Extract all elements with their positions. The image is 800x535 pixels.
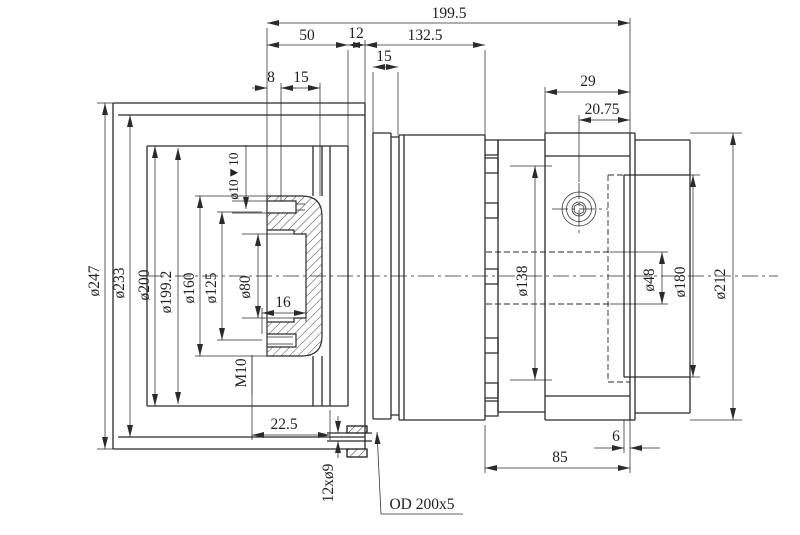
dim-12: 12 [348, 25, 364, 42]
screw-bosses [485, 140, 498, 416]
dim-overall-length: 199.5 [432, 5, 467, 22]
dim-16: 16 [275, 294, 291, 311]
dim-bolt-holes: 12xø9 [320, 463, 337, 502]
dim-15-lower: 15 [293, 69, 309, 86]
dim-m10-thread: M10 [233, 358, 250, 388]
dim-dia233: ø233 [111, 267, 128, 298]
extension-lines [97, 18, 742, 514]
dim-dia80: ø80 [237, 275, 254, 299]
dim-132-5: 132.5 [408, 27, 443, 44]
dim-8: 8 [267, 69, 275, 86]
neck-and-block [373, 133, 485, 420]
body-outline [113, 103, 690, 457]
centerlines [148, 183, 778, 276]
dim-50: 50 [299, 27, 315, 44]
drawing-canvas: 199.5 50 12 132.5 15 8 15 29 20.75 ø247 … [0, 0, 800, 535]
dim-85: 85 [552, 449, 568, 466]
dim-dia212: ø212 [712, 269, 729, 300]
dimension-lines [105, 23, 733, 514]
dim-counterbore: ø10▼10 [226, 152, 241, 199]
oring-section-bottom [347, 449, 367, 457]
dim-dia180: ø180 [672, 266, 689, 297]
dim-dia125: ø125 [203, 272, 220, 303]
oring-section-top [347, 426, 367, 433]
dim-29: 29 [580, 73, 596, 90]
oring-note: OD 200x5 [389, 496, 454, 513]
dim-dia247: ø247 [86, 265, 103, 296]
dim-dia200: ø200 [136, 269, 153, 300]
gearbox-section-drawing: 199.5 50 12 132.5 15 8 15 29 20.75 ø247 … [0, 0, 800, 535]
hidden-lines [486, 175, 630, 382]
dim-20-75: 20.75 [585, 101, 620, 118]
dim-15-upper: 15 [376, 48, 392, 65]
dim-dia48: ø48 [641, 268, 658, 292]
dim-dia160: ø160 [181, 272, 198, 303]
motor-adapter [545, 133, 690, 420]
dim-22-5: 22.5 [270, 416, 297, 433]
dim-6: 6 [612, 428, 620, 445]
dim-dia138: ø138 [514, 265, 531, 296]
dim-dia199-2: ø199.2 [158, 271, 175, 314]
